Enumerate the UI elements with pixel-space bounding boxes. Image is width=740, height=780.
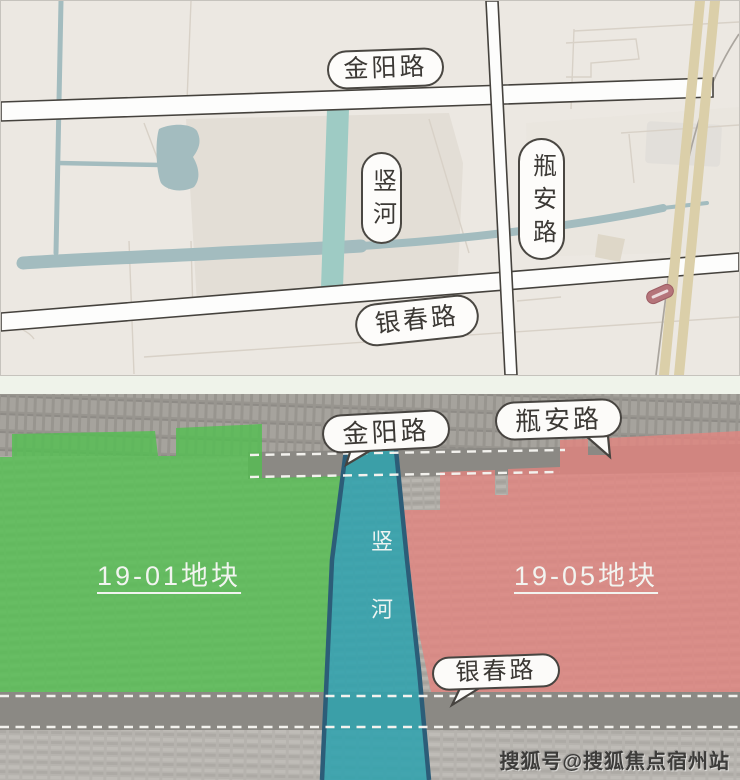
- parcel-19-05-label: 19-05地块: [514, 554, 658, 593]
- label-text: 银春路: [374, 304, 460, 338]
- label-yinchun-road-bottom: 银春路: [431, 653, 560, 691]
- top-map-panel: 金阳路 竖河 瓶安路 银春路: [0, 0, 740, 376]
- label-text: 金阳路: [342, 416, 430, 447]
- pond-shape: [157, 125, 200, 191]
- label-jinyang-road-bottom: 金阳路: [321, 409, 451, 455]
- label-text: 银春路: [455, 659, 537, 686]
- label-text: 瓶安路: [515, 405, 603, 434]
- label-pingan-road-top: 瓶安路: [518, 138, 565, 260]
- label-text: 金阳路: [343, 55, 428, 83]
- label-text: 竖河: [370, 168, 394, 234]
- river-char-he: 河: [371, 592, 393, 624]
- label-text: 瓶安路: [530, 153, 554, 252]
- parcel-block-small-2: [595, 234, 625, 262]
- parcel-19-01-label: 19-01地块: [97, 554, 241, 593]
- bottom-map-panel: 金阳路 瓶安路 银春路 19-01地块 19-05地块 竖 河 搜狐号@搜狐焦点…: [0, 394, 740, 780]
- label-shu-river-top: 竖河: [361, 152, 402, 244]
- watermark-text: 搜狐号@搜狐焦点宿州站: [499, 745, 730, 774]
- river-char-shu: 竖: [371, 524, 393, 556]
- label-pingan-road-bottom: 瓶安路: [494, 398, 622, 441]
- page: 金阳路 竖河 瓶安路 银春路: [0, 0, 740, 780]
- label-jinyang-road-top: 金阳路: [326, 47, 444, 90]
